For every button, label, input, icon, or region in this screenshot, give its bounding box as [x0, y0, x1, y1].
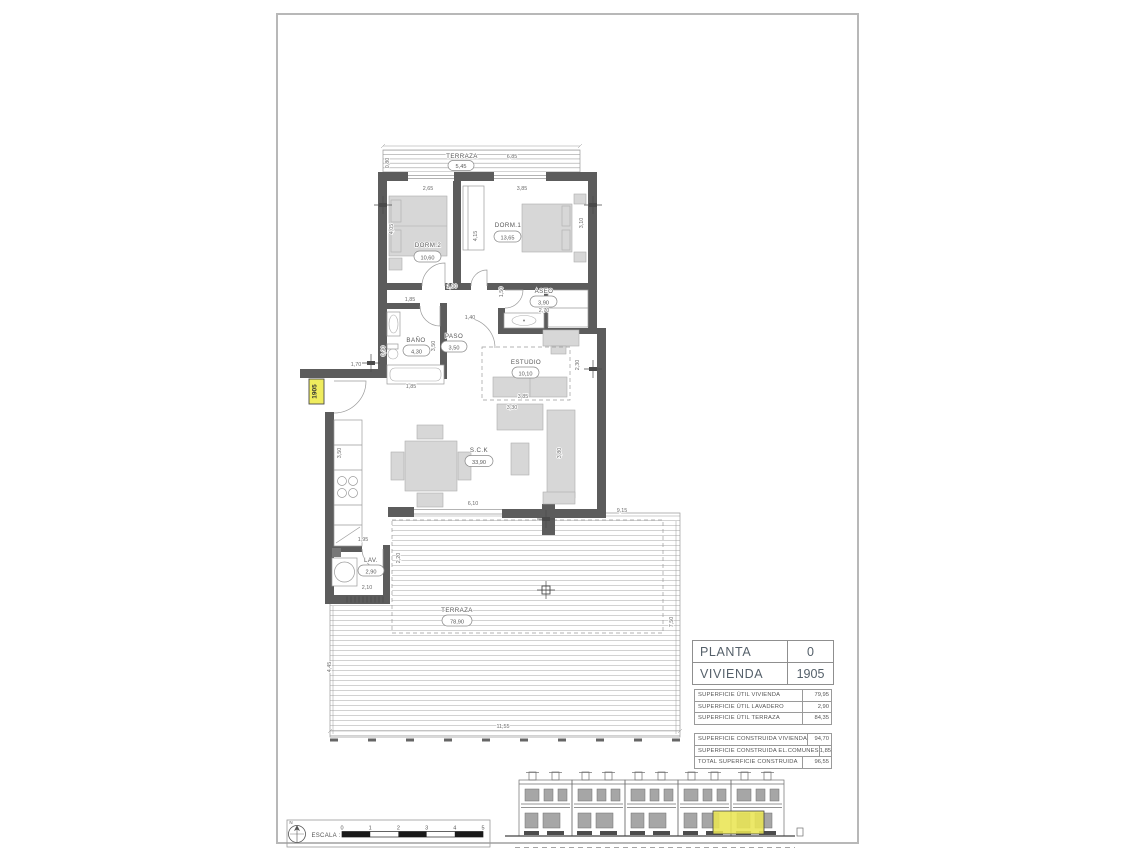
svg-text:6,10: 6,10 — [468, 501, 479, 507]
svg-text:3,50: 3,50 — [337, 448, 343, 459]
surface-table-construida: SUPERFICIE CONSTRUIDA VIVIENDA 94,70 SUP… — [694, 733, 832, 769]
svg-text:1,70: 1,70 — [351, 362, 362, 368]
svg-text:3,85: 3,85 — [517, 186, 528, 192]
svg-text:6,85: 6,85 — [507, 154, 518, 160]
svg-text:78,90: 78,90 — [450, 620, 464, 626]
dining-table — [405, 441, 457, 491]
title-row-planta: PLANTA 0 — [693, 641, 833, 662]
terrace-bottom — [328, 513, 682, 740]
room-label-aseo: ASEO 3,90 — [530, 288, 557, 307]
svg-text:3,10: 3,10 — [579, 218, 585, 229]
svg-text:ASEO: ASEO — [535, 288, 554, 295]
svg-text:1: 1 — [369, 826, 372, 832]
svg-text:3,80: 3,80 — [557, 448, 563, 459]
svg-text:1905: 1905 — [312, 384, 319, 399]
sofa — [497, 404, 543, 430]
shower — [548, 290, 588, 327]
svg-text:4,15: 4,15 — [473, 231, 479, 242]
room-label-estudio: ESTUDIO 10,10 — [511, 359, 541, 378]
svg-text:3: 3 — [425, 826, 428, 832]
svg-text:4: 4 — [453, 826, 456, 832]
svg-text:1,40: 1,40 — [465, 315, 476, 321]
svg-text:5: 5 — [481, 826, 484, 832]
room-label-dorm1: DORM.1 13,65 — [494, 222, 521, 242]
svg-text:2,70: 2,70 — [539, 308, 550, 314]
svg-text:10,60: 10,60 — [421, 256, 435, 262]
svg-text:2,65: 2,65 — [423, 186, 434, 192]
svg-text:TERRAZA: TERRAZA — [446, 153, 478, 160]
svg-text:DORM.1: DORM.1 — [495, 222, 522, 229]
svg-text:N: N — [289, 820, 292, 825]
table-row: SUPERFICIE ÚTIL LAVADERO 2,90 — [695, 701, 831, 713]
building-elevation — [505, 772, 803, 848]
table-row: SUPERFICIE ÚTIL VIVIENDA 79,95 — [695, 690, 831, 701]
svg-text:BAÑO: BAÑO — [406, 337, 425, 344]
unit-tag: 1905 — [309, 379, 324, 404]
svg-text:TERRAZA: TERRAZA — [441, 607, 473, 614]
svg-text:1,95: 1,95 — [358, 537, 369, 543]
scale-ruler — [342, 832, 483, 838]
svg-text:3,50: 3,50 — [431, 341, 437, 352]
svg-text:2,20: 2,20 — [396, 553, 402, 564]
svg-text:0,80: 0,80 — [385, 158, 391, 169]
vivienda-label: VIVIENDA — [693, 667, 787, 681]
svg-text:9,15: 9,15 — [617, 508, 628, 514]
room-label-dorm2: DORM.2 10,60 — [414, 242, 441, 262]
svg-text:0,90: 0,90 — [381, 346, 387, 357]
room-label-lav: LAV. 2,90 — [358, 557, 384, 576]
svg-text:4,45: 4,45 — [327, 662, 333, 673]
title-block-main: PLANTA 0 VIVIENDA 1905 — [692, 640, 834, 685]
surface-table-util: SUPERFICIE ÚTIL VIVIENDA 79,95 SUPERFICI… — [694, 689, 832, 725]
planta-value: 0 — [787, 641, 833, 662]
room-label-terraza-bottom: TERRAZA 78,90 — [441, 607, 473, 626]
svg-text:1,85: 1,85 — [405, 297, 416, 303]
drawing-sheet: TERRAZA 5,45 DORM.2 10,60 DORM.1 13,65 A… — [0, 0, 1140, 860]
svg-text:4,05: 4,05 — [389, 224, 395, 235]
svg-text:PASO: PASO — [445, 333, 463, 340]
svg-text:3,90: 3,90 — [538, 301, 549, 307]
table-row: SUPERFICIE CONSTRUIDA VIVIENDA 94,70 — [695, 734, 831, 745]
svg-text:5,45: 5,45 — [456, 164, 467, 170]
svg-text:2,30: 2,30 — [575, 360, 581, 371]
table-row: TOTAL SUPERFICIE CONSTRUIDA 96,55 — [695, 756, 831, 768]
svg-text:4,30: 4,30 — [411, 350, 422, 356]
vivienda-value: 1905 — [787, 663, 833, 684]
svg-text:3,30: 3,30 — [507, 405, 518, 411]
svg-text:0: 0 — [340, 826, 343, 832]
svg-text:ESTUDIO: ESTUDIO — [511, 359, 541, 366]
room-label-paso: PASO 3,50 — [441, 333, 467, 352]
table-row: SUPERFICIE CONSTRUIDA EL.COMUNES 1,85 — [695, 745, 831, 757]
room-label-banio: BAÑO 4,30 — [403, 337, 430, 356]
svg-text:10,10: 10,10 — [519, 372, 533, 378]
table-row: SUPERFICIE ÚTIL TERRAZA 84,35 — [695, 712, 831, 724]
unit-location-highlight — [713, 811, 764, 834]
svg-text:2: 2 — [397, 826, 400, 832]
svg-text:S.C.K: S.C.K — [470, 447, 489, 454]
svg-text:2,10: 2,10 — [362, 585, 373, 591]
svg-text:7,50: 7,50 — [669, 617, 675, 628]
svg-text:3,50: 3,50 — [449, 346, 460, 352]
north-arrow-icon: N — [289, 820, 306, 843]
room-label-sck: S.C.K 33,90 — [465, 447, 493, 467]
svg-text:1,50: 1,50 — [499, 287, 505, 298]
terrace-top-strip — [381, 144, 582, 172]
svg-text:13,65: 13,65 — [501, 236, 515, 242]
svg-text:1,85: 1,85 — [406, 384, 417, 390]
svg-text:1,00: 1,00 — [447, 284, 458, 290]
svg-text:11,55: 11,55 — [496, 724, 509, 730]
svg-text:DORM.2: DORM.2 — [415, 242, 442, 249]
scale-label: ESCALA : — [311, 833, 340, 839]
svg-text:3,85: 3,85 — [518, 394, 529, 400]
svg-text:2,90: 2,90 — [366, 570, 377, 576]
planta-label: PLANTA — [693, 645, 787, 659]
svg-text:LAV.: LAV. — [364, 557, 378, 564]
scale-ticks: 0 1 2 3 4 5 — [340, 826, 484, 832]
title-row-vivienda: VIVIENDA 1905 — [693, 662, 833, 684]
floor-plan-drawing: TERRAZA 5,45 DORM.2 10,60 DORM.1 13,65 A… — [0, 0, 1140, 860]
svg-text:33,90: 33,90 — [472, 460, 486, 466]
banio-wc — [387, 344, 398, 349]
